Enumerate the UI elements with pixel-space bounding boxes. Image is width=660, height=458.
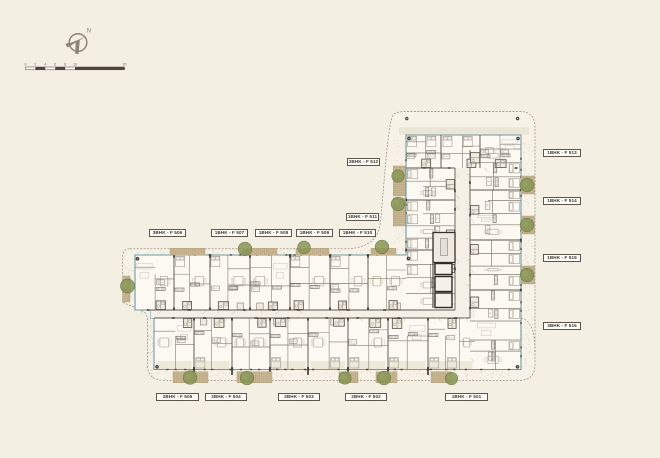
svg-text:6: 6 bbox=[54, 63, 56, 67]
svg-text:0: 0 bbox=[25, 63, 27, 67]
svg-text:20: 20 bbox=[123, 63, 127, 67]
svg-text:N: N bbox=[87, 29, 91, 35]
svg-text:4: 4 bbox=[44, 63, 46, 67]
svg-text:10: 10 bbox=[73, 63, 77, 67]
svg-text:8: 8 bbox=[64, 63, 66, 67]
svg-text:2: 2 bbox=[34, 63, 36, 67]
